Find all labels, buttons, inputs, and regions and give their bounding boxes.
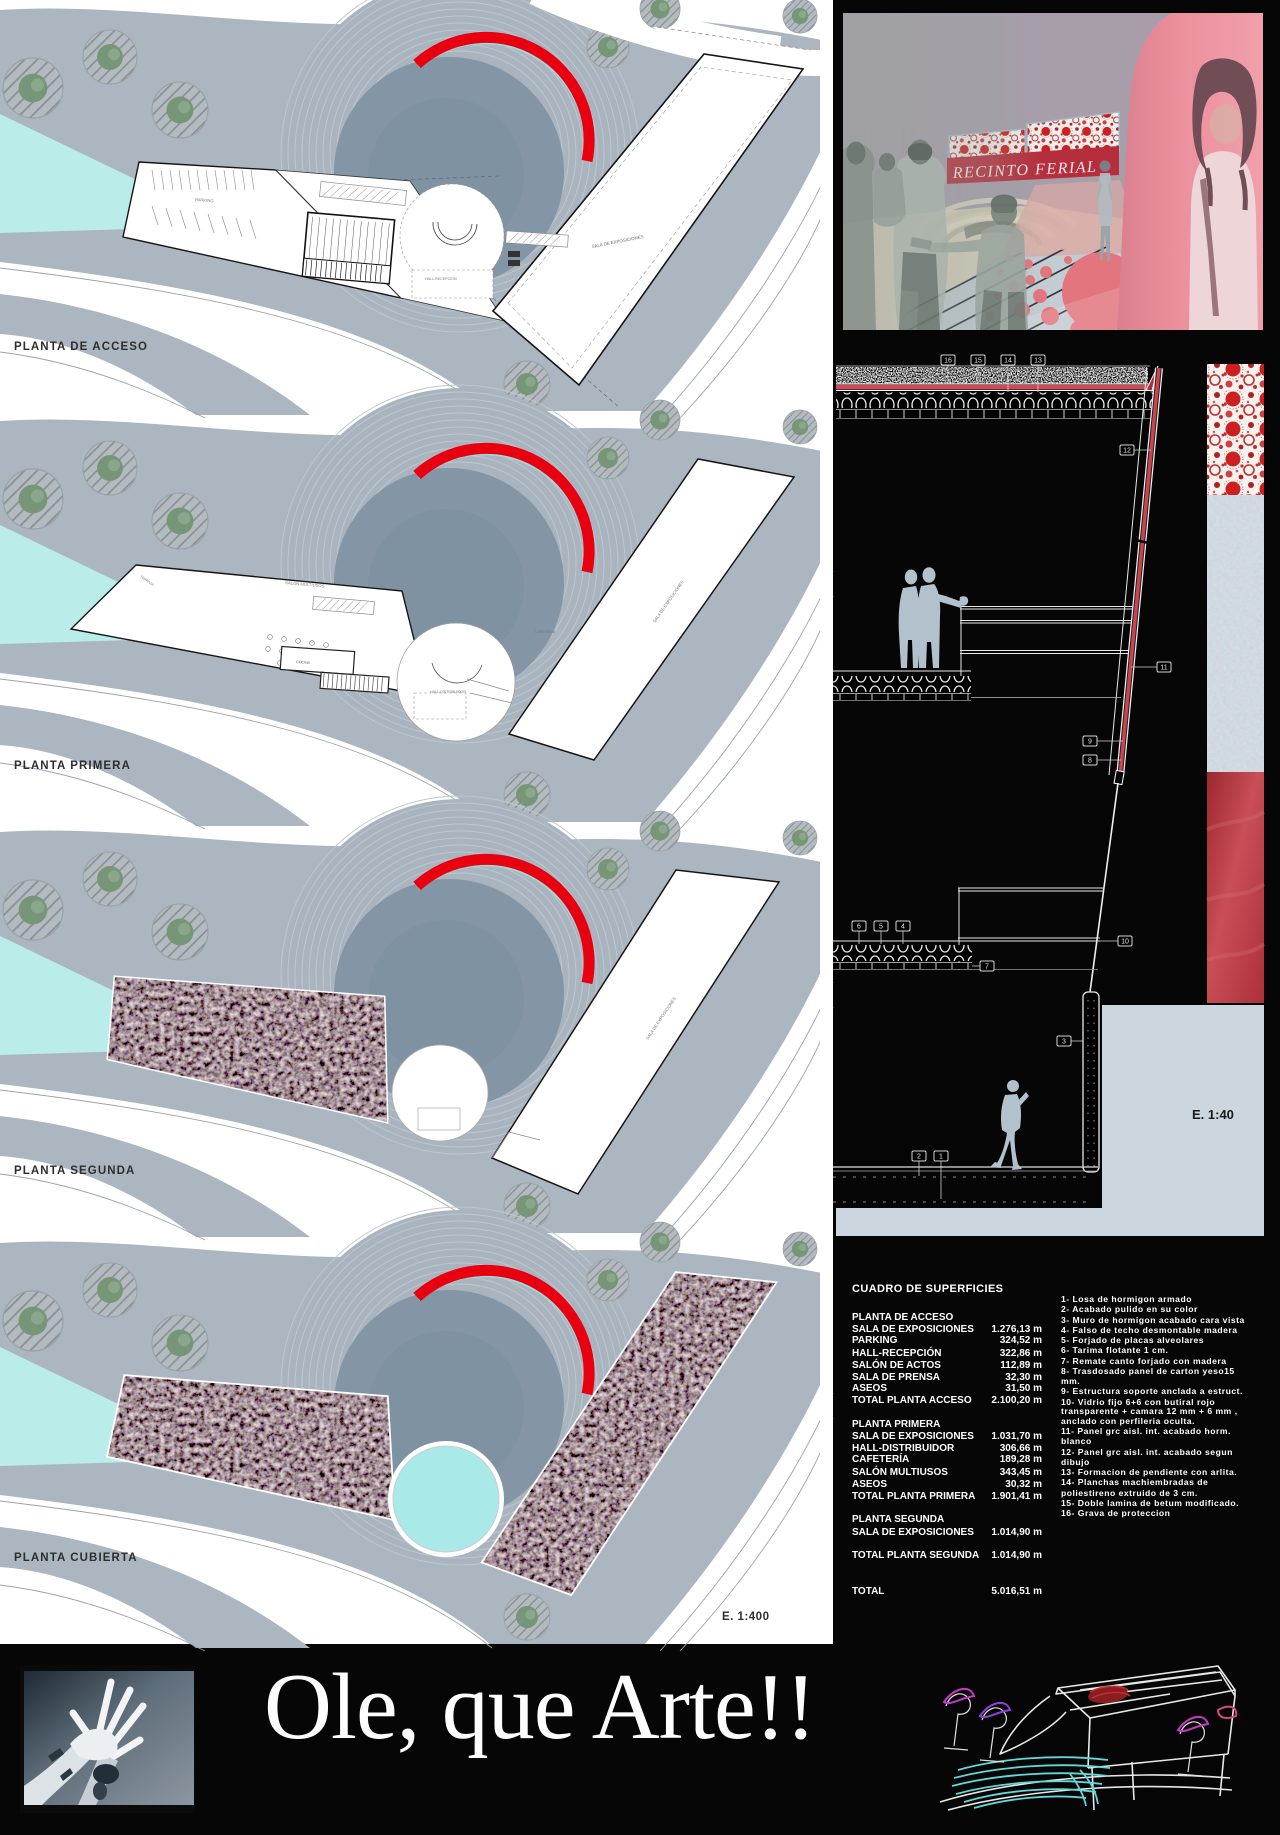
svg-text:CAFETERIA: CAFETERIA <box>535 630 556 634</box>
svg-text:7: 7 <box>985 964 989 971</box>
svg-text:PLANTA CUBIERTA: PLANTA CUBIERTA <box>14 1552 138 1564</box>
svg-text:2: 2 <box>917 1154 921 1161</box>
svg-text:6: 6 <box>857 924 861 931</box>
svg-text:14: 14 <box>1004 358 1012 365</box>
svg-text:HALL-RECEPCION: HALL-RECEPCION <box>425 277 457 281</box>
svg-text:1: 1 <box>939 1154 943 1161</box>
svg-text:PLANTA DE ACCESO: PLANTA DE ACCESO <box>14 341 148 353</box>
svg-text:11: 11 <box>1160 665 1167 672</box>
svg-text:4: 4 <box>901 924 905 931</box>
svg-text:HALL-DISTRIBUIDOR: HALL-DISTRIBUIDOR <box>430 690 466 694</box>
svg-text:8: 8 <box>1088 758 1092 765</box>
svg-text:15: 15 <box>974 358 982 365</box>
svg-text:3: 3 <box>1062 1039 1066 1046</box>
svg-text:PLANTA SEGUNDA: PLANTA SEGUNDA <box>14 1165 135 1177</box>
svg-text:12: 12 <box>1123 448 1131 455</box>
svg-text:E. 1:40: E. 1:40 <box>1192 1107 1234 1122</box>
svg-text:E. 1:400: E. 1:400 <box>722 1611 769 1623</box>
svg-text:9: 9 <box>1088 739 1092 746</box>
svg-text:5: 5 <box>879 924 883 931</box>
svg-text:16: 16 <box>944 358 952 365</box>
svg-text:PLANTA PRIMERA: PLANTA PRIMERA <box>14 760 131 772</box>
svg-text:13: 13 <box>1034 358 1042 365</box>
svg-text:10: 10 <box>1121 939 1129 946</box>
